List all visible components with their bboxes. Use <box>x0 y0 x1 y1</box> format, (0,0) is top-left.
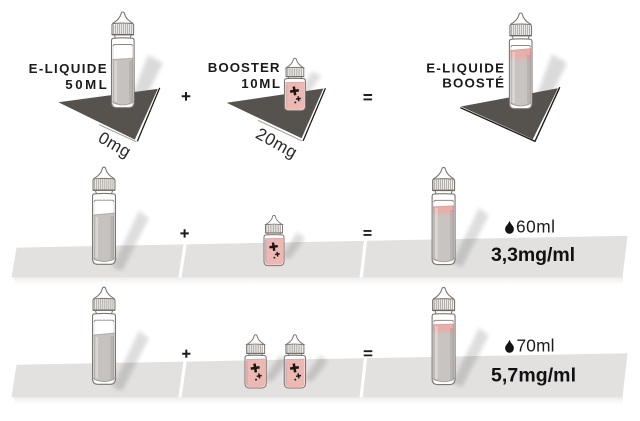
svg-text:50ML: 50ML <box>65 77 107 92</box>
svg-text:BOOSTER: BOOSTER <box>208 60 280 75</box>
svg-text:10ML: 10ML <box>241 76 280 91</box>
svg-text:E-LIQUIDE: E-LIQUIDE <box>29 61 107 76</box>
svg-text:5,7mg/ml: 5,7mg/ml <box>491 365 576 387</box>
svg-text:3,3mg/ml: 3,3mg/ml <box>491 244 575 266</box>
svg-text:70ml: 70ml <box>517 336 555 356</box>
svg-text:E-LIQUIDE: E-LIQUIDE <box>426 61 504 76</box>
svg-text:BOOSTÉ: BOOSTÉ <box>442 75 504 90</box>
svg-text:60ml: 60ml <box>516 217 555 237</box>
